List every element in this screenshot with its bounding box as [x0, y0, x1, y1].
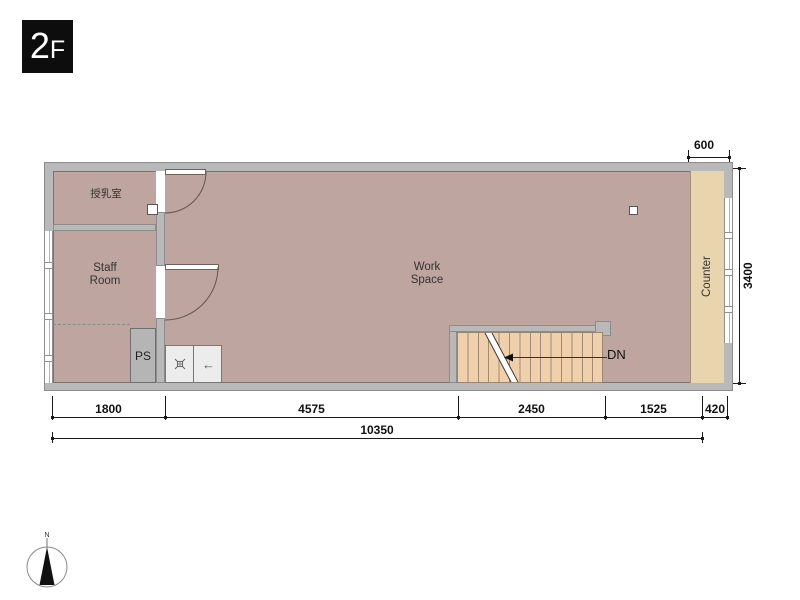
- door-leaf-nursing: [165, 169, 206, 175]
- window-mullion: [725, 269, 732, 276]
- dashed-line: [53, 324, 130, 325]
- dim-dot: [457, 416, 460, 419]
- dim-dot: [701, 416, 704, 419]
- ps-shaft: PS: [130, 328, 156, 383]
- floor-badge: 2F: [22, 20, 73, 73]
- floor-number: 2: [30, 28, 50, 64]
- room-label-staff-line1: Staff: [53, 262, 157, 275]
- dim-bottom-2450: 2450: [458, 402, 605, 416]
- dim-dot: [728, 156, 731, 159]
- room-label-counter: Counter: [690, 171, 724, 383]
- room-label-staff-line2: Room: [53, 275, 157, 288]
- interior-wall-lower: [156, 318, 165, 383]
- window-right-wall: [724, 198, 733, 343]
- dim-line: [52, 417, 727, 418]
- dim-dot: [726, 416, 729, 419]
- dim-top-600: 600: [678, 138, 730, 152]
- room-label-workspace: Work Space: [377, 261, 477, 287]
- stair-wall-left: [449, 325, 457, 383]
- window-mullion: [725, 232, 732, 239]
- sink-divider: [193, 345, 194, 383]
- dim-bottom-1525: 1525: [605, 402, 702, 416]
- column-marker: [629, 206, 638, 215]
- dim-bottom-4575: 4575: [165, 402, 458, 416]
- staircase: [457, 332, 603, 383]
- window-mullion: [45, 355, 52, 362]
- window-mullion: [45, 313, 52, 320]
- door-frame-block: [147, 204, 158, 215]
- compass-north-label: N: [44, 532, 49, 539]
- dim-line: [52, 438, 702, 439]
- dim-dot: [687, 156, 690, 159]
- dim-dot: [51, 437, 54, 440]
- floor-suffix: F: [50, 38, 65, 63]
- room-label-nursing: 授乳室: [60, 186, 152, 201]
- dim-line: [688, 157, 730, 158]
- room-label-work-line1: Work: [377, 261, 477, 274]
- stair-dn-label: DN: [607, 347, 626, 362]
- wall-nursing-staff-divider: [53, 224, 156, 231]
- dim-right-3400: 3400: [740, 168, 756, 383]
- dim-dot: [701, 437, 704, 440]
- north-arrow-icon: N: [25, 528, 69, 590]
- room-label-staff: Staff Room: [53, 262, 157, 288]
- interior-wall-upper: [156, 212, 165, 266]
- dim-bottom-1800: 1800: [52, 402, 165, 416]
- dim-dot: [164, 416, 167, 419]
- dim-dot: [604, 416, 607, 419]
- dim-bottom-total: 10350: [52, 423, 702, 437]
- ps-label: PS: [135, 349, 151, 363]
- sink-drain-icon: [166, 346, 194, 382]
- window-left-wall: [44, 231, 53, 383]
- stair-wall-top: [449, 325, 601, 332]
- window-mullion: [725, 306, 732, 313]
- dim-dot: [51, 416, 54, 419]
- door-leaf-staff: [165, 264, 219, 270]
- room-label-work-line2: Space: [377, 274, 477, 287]
- door-opening-staff: [156, 266, 165, 318]
- window-mullion: [45, 262, 52, 269]
- floorplan-page: 2F PS ←: [0, 0, 800, 600]
- sink-arrow-icon: ←: [195, 346, 222, 382]
